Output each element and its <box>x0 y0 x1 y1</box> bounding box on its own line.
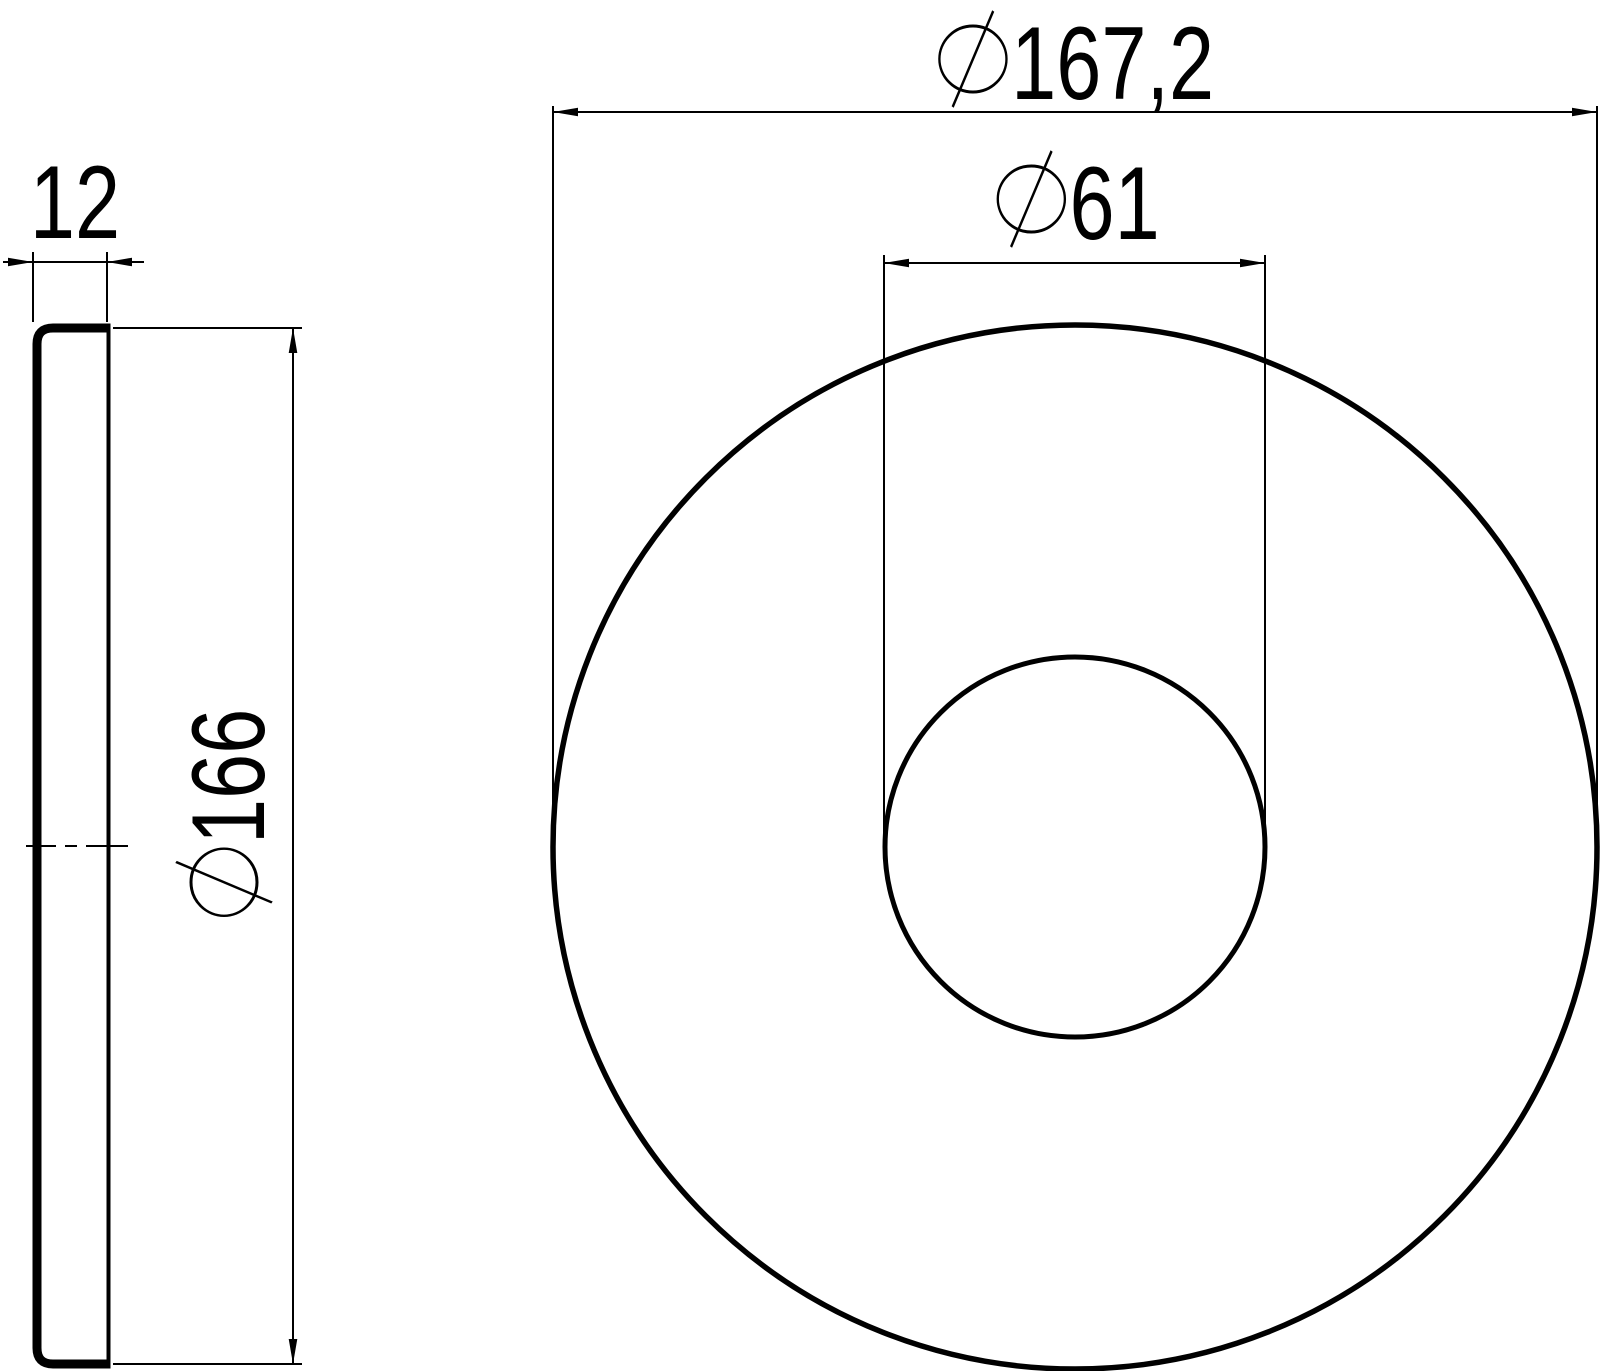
dim-value-side-diameter: 166 <box>177 709 281 844</box>
diameter-symbol-icon <box>996 149 1066 259</box>
dim-label-bore-diameter: 61 <box>996 149 1160 259</box>
dim-value-outer-diameter: 167,2 <box>1011 12 1214 116</box>
diameter-symbol-icon <box>938 9 1008 119</box>
dim-value-bore-diameter: 61 <box>1070 152 1160 256</box>
dim-bore-diameter-arrow-left <box>884 259 909 268</box>
dim-value-thickness: 12 <box>30 151 120 255</box>
dim-bore-diameter-arrow-right <box>1240 259 1265 268</box>
outer-circle <box>553 325 1597 1369</box>
dim-side-diameter-arrow-top <box>289 328 298 353</box>
technical-drawing: 12 167,2 61 166 <box>0 0 1600 1371</box>
dim-label-side-diameter: 166 <box>174 709 284 918</box>
side-view <box>26 324 128 1369</box>
drawing-linework <box>0 0 1600 1371</box>
dim-label-thickness: 12 <box>30 151 120 255</box>
dim-label-outer-diameter: 167,2 <box>938 9 1214 119</box>
bore-circle <box>885 657 1265 1037</box>
front-view <box>553 325 1597 1369</box>
dim-outer-diameter-arrow-right <box>1572 108 1597 117</box>
diameter-symbol-icon <box>174 847 284 917</box>
dim-outer-diameter-arrow-left <box>553 108 578 117</box>
dim-thickness <box>3 252 144 322</box>
dim-side-diameter-arrow-bottom <box>289 1339 298 1364</box>
